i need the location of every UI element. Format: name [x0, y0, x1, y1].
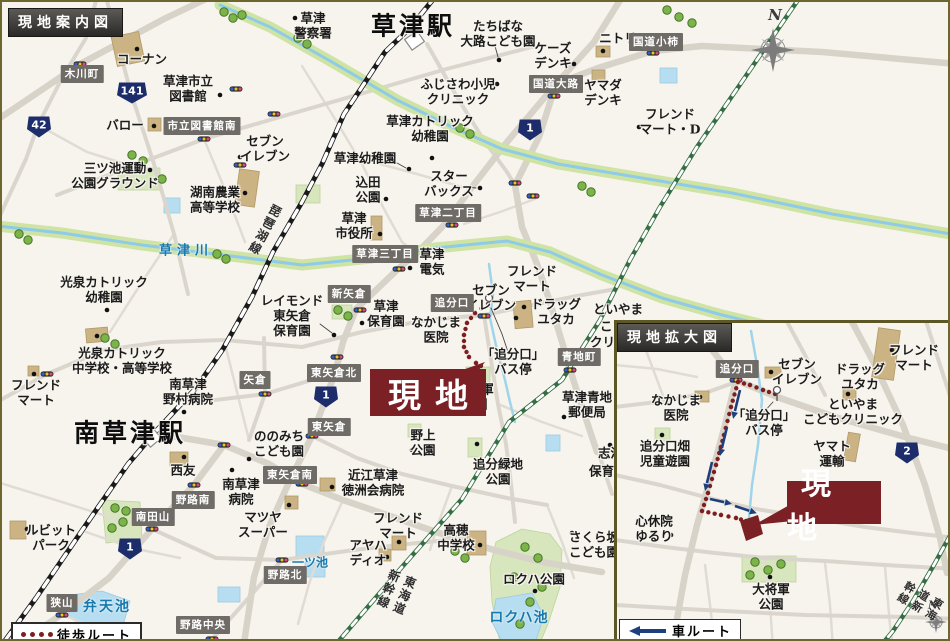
- place-label-line: 中学校・高等学校: [72, 361, 172, 376]
- route-dot: [462, 339, 466, 343]
- place-label: 湖南農業高等学校: [190, 185, 240, 215]
- tree-icon: [213, 250, 221, 258]
- place-label-line: バス停: [482, 362, 545, 377]
- place-label: 草津幼稚園: [334, 152, 397, 167]
- place-label-line: 湖南農業: [190, 185, 240, 200]
- place-label-line: 草津: [335, 211, 373, 226]
- place-label-line: デンキ: [534, 56, 572, 71]
- route-dot: [706, 510, 710, 514]
- place-label: 大将軍公園: [752, 582, 790, 612]
- place-label: ののみちこども園: [254, 429, 304, 459]
- route-dot: [469, 316, 473, 320]
- place-label-line: 電気: [419, 262, 444, 277]
- place-label-line: 草津: [294, 11, 332, 26]
- place-label-line: 「追分口」: [733, 408, 796, 423]
- place-label: 草津電気: [419, 247, 444, 277]
- place-dot-icon: [514, 316, 519, 321]
- intersection-badge: 新矢倉: [328, 285, 371, 303]
- place-label: ルビットパーク: [26, 523, 76, 553]
- tree-icon: [675, 13, 683, 21]
- place-label: 込田公園: [355, 175, 380, 205]
- place-label-line: デンキ: [584, 93, 622, 108]
- tree-icon: [24, 236, 32, 244]
- tree-icon: [220, 8, 228, 16]
- route-dot: [761, 388, 765, 392]
- intersection-badge: 野路中央: [176, 616, 230, 634]
- place-label: 草津市立図書館: [163, 74, 213, 104]
- tree-icon: [303, 40, 311, 48]
- traffic-signal-icon: [276, 557, 289, 562]
- place-label: ヤマダデンキ: [584, 78, 622, 108]
- place-dot-icon: [660, 433, 665, 438]
- water-label: 弁天池: [83, 596, 131, 616]
- place-label: 南草津野村病院: [163, 377, 213, 407]
- place-label: セブンイレブン: [240, 134, 290, 164]
- tree-icon: [15, 230, 23, 238]
- place-label: 西友: [170, 464, 195, 479]
- place-label-line: フレンド: [507, 264, 557, 279]
- route-dot: [726, 514, 730, 518]
- station-label: 草津駅: [371, 11, 455, 41]
- place-label-line: 公園: [752, 597, 790, 612]
- traffic-signal-icon: [218, 442, 231, 447]
- intersection-badge: 狭山: [47, 594, 78, 612]
- place-label: なかじま医院: [411, 315, 461, 345]
- site-parcel: [740, 515, 763, 541]
- place-label: ケーズデンキ: [534, 41, 572, 71]
- place-label-line: レイモンド: [261, 294, 324, 309]
- traffic-signal-icon: [564, 367, 577, 372]
- place-label: 高穂中学校: [437, 523, 475, 553]
- route-dot: [464, 350, 468, 354]
- traffic-signal-icon: [393, 266, 406, 271]
- intersection-badge: 草津三丁目: [352, 245, 418, 263]
- place-label-line: クリニック: [420, 92, 495, 107]
- place-label-line: バックス: [424, 184, 474, 199]
- place-label-line: フレンド: [11, 378, 61, 393]
- place-label-line: ディオ: [349, 553, 386, 568]
- route-dot: [462, 333, 466, 337]
- route-dot: [754, 385, 758, 389]
- place-label-line: 光泉カトリック: [60, 275, 148, 290]
- place-dot-icon: [105, 308, 110, 313]
- place-label-line: 公園: [473, 472, 523, 487]
- traffic-signal-icon: [146, 526, 159, 531]
- intersection-badge: 木川町: [61, 65, 104, 83]
- place-label-line: 大将軍: [752, 582, 790, 597]
- route-dot: [742, 381, 746, 385]
- route-dot: [732, 392, 736, 396]
- place-label-line: ロクハ公園: [503, 573, 565, 588]
- place-label-line: ドラッグ: [531, 297, 581, 312]
- place-label-line: フレンド: [373, 511, 423, 526]
- place-label-line: イレブン: [240, 149, 290, 164]
- place-label-line: 野村病院: [163, 392, 213, 407]
- place-label-line: といやま: [593, 303, 643, 318]
- place-label-line: 図書館: [163, 89, 213, 104]
- place-label-line: マート: [507, 279, 557, 294]
- place-label-line: 徳洲会病院: [342, 483, 405, 498]
- intersection-badge: 追分口: [431, 294, 474, 312]
- tree-icon: [101, 334, 109, 342]
- pond: [660, 68, 677, 83]
- route-dot: [712, 470, 716, 474]
- place-label-line: 野上: [410, 428, 435, 443]
- place-label-line: ヤマダ: [584, 78, 622, 93]
- place-label-line: 「追分口」: [482, 347, 545, 362]
- place-label: アヤハディオ: [349, 538, 386, 568]
- place-label-line: 草津カトリック: [386, 114, 474, 129]
- location-guide-map: 草津警察署たちばな大路こども園ケーズデンキニトリヤマダデンキフレンドマート・Dコ…: [0, 0, 950, 641]
- place-label-line: なかじま: [411, 315, 461, 330]
- place-label: フレンドマート: [507, 264, 557, 294]
- place-label: 草津警察署: [294, 11, 332, 41]
- walk-route-dot-icon: [30, 632, 35, 637]
- place-label-line: 児童遊園: [640, 454, 690, 469]
- place-label-line: スター: [424, 169, 474, 184]
- route-dot: [463, 327, 467, 331]
- place-label-line: 南草津: [163, 377, 213, 392]
- place-label-line: 公園グラウンド: [71, 176, 159, 191]
- tree-icon: [334, 306, 342, 314]
- tree-icon: [587, 188, 595, 196]
- site-marker-inset: 現地: [787, 481, 881, 524]
- place-label: バロー: [106, 119, 144, 134]
- route-dot: [734, 516, 738, 520]
- traffic-signal-icon: [230, 86, 243, 91]
- map-title: 現地案内図: [8, 8, 123, 37]
- route-dot: [714, 463, 718, 467]
- road-minor: [617, 365, 697, 377]
- place-label-line: 草津: [419, 247, 444, 262]
- place-label: フレンドマート: [11, 378, 61, 408]
- route-dot: [725, 419, 729, 423]
- route-dot: [727, 412, 731, 416]
- walk-route-legend-label: 徒歩ルート: [57, 625, 132, 641]
- place-dot-icon: [182, 410, 187, 415]
- place-label-line: 南草津: [222, 477, 260, 492]
- tree-icon: [222, 255, 230, 263]
- place-label-line: さくら坂: [569, 530, 619, 545]
- car-route-legend: 車ルート: [619, 619, 741, 641]
- place-dot-icon: [135, 47, 140, 52]
- tree-icon: [578, 182, 586, 190]
- place-dot-icon: [230, 468, 235, 473]
- place-label-line: イレブン: [772, 372, 822, 387]
- traffic-signal-icon: [56, 612, 69, 617]
- traffic-signal-icon: [198, 136, 211, 141]
- place-label-line: 心休院: [635, 514, 673, 529]
- place-label-line: セブン: [772, 357, 822, 372]
- place-label-line: マツヤ: [238, 510, 288, 525]
- building: [10, 521, 26, 539]
- intersection-badge: 草津二丁目: [415, 204, 481, 222]
- tree-icon: [122, 507, 130, 515]
- route-dot: [712, 511, 716, 515]
- place-dot-icon: [95, 334, 100, 339]
- place-label-line: 草津: [367, 299, 405, 314]
- place-label-line: 草津幼稚園: [334, 152, 397, 167]
- place-label-line: フレンド: [640, 107, 701, 122]
- place-label-line: 保育園: [261, 323, 324, 338]
- pond: [218, 587, 240, 602]
- car-route-arrow-icon: [628, 625, 668, 637]
- route-dot: [767, 390, 771, 394]
- place-label-line: 草津市立: [163, 74, 213, 89]
- traffic-signal-icon: [259, 391, 272, 396]
- place-label: 草津青地郵便局: [562, 390, 612, 420]
- intersection-badge: 市立図書館南: [164, 117, 241, 135]
- traffic-signal-icon: [188, 482, 201, 487]
- road: [249, 338, 265, 440]
- bus-stop-icon: [774, 387, 781, 394]
- place-label-line: 幼稚園: [386, 129, 474, 144]
- intersection-badge: 国道小柿: [629, 33, 683, 51]
- compass-north-label: N: [928, 599, 938, 612]
- walk-route-legend: 徒歩ルート: [11, 622, 142, 641]
- place-dot-icon: [768, 575, 773, 580]
- place-label: 追分緑地公園: [473, 457, 523, 487]
- place-dot-icon: [475, 442, 480, 447]
- tree-icon: [746, 571, 754, 579]
- place-label-line: 高等学校: [190, 200, 240, 215]
- place-label-line: 保育園: [367, 314, 405, 329]
- place-label-line: バス停: [733, 423, 796, 438]
- place-dot-icon: [408, 266, 413, 271]
- tree-icon: [777, 560, 785, 568]
- place-label-line: 込田: [355, 175, 380, 190]
- place-label-line: マート・D: [640, 122, 701, 137]
- place-label-line: ドラッグ: [835, 362, 885, 377]
- site-marker-main: 現地: [370, 369, 486, 416]
- place-label-line: 医院: [411, 330, 461, 345]
- tree-icon: [534, 554, 542, 562]
- place-label-line: 光泉カトリック: [72, 346, 172, 361]
- place-label-line: 市役所: [335, 226, 373, 241]
- tree-icon: [521, 543, 529, 551]
- route-dot: [467, 355, 471, 359]
- road-minor: [224, 340, 249, 440]
- place-label-line: 公園: [355, 190, 380, 205]
- walk-route-dot-icon: [21, 632, 26, 637]
- place-label: 草津市役所: [335, 211, 373, 241]
- tree-icon: [119, 518, 127, 526]
- place-label: セブンイレブン: [772, 357, 822, 387]
- place-label-line: こども園: [569, 545, 619, 560]
- place-dot-icon: [152, 124, 157, 129]
- place-dot-icon: [182, 455, 187, 460]
- place-dot-icon: [218, 93, 223, 98]
- place-label-line: 三ツ池運動: [71, 161, 159, 176]
- place-label: マツヤスーパー: [238, 510, 288, 540]
- intersection-badge: 東矢倉南: [263, 466, 317, 484]
- place-dot-icon: [360, 321, 365, 326]
- place-label: ドラッグユタカ: [531, 297, 581, 327]
- traffic-signal-icon: [354, 307, 367, 312]
- traffic-signal-icon: [509, 180, 522, 185]
- place-label: 三ツ池運動公園グラウンド: [71, 161, 159, 191]
- route-dot: [715, 457, 719, 461]
- traffic-signal-icon: [331, 354, 344, 359]
- intersection-badge: 南田山: [132, 508, 175, 526]
- traffic-signal-icon: [647, 50, 660, 55]
- place-dot-icon: [522, 305, 527, 310]
- place-label-line: 医院: [651, 408, 701, 423]
- place-dot-icon: [332, 333, 337, 338]
- tree-icon: [751, 558, 759, 566]
- tree-icon: [526, 598, 534, 606]
- place-label: ロクハ公園: [503, 573, 565, 588]
- inset-title: 現地拡大図: [617, 323, 732, 352]
- place-label-line: セブン: [240, 134, 290, 149]
- traffic-signal-icon: [206, 636, 219, 641]
- place-label-line: 郵便局: [562, 405, 612, 420]
- place-label-line: 警察署: [294, 26, 332, 41]
- traffic-signal-icon: [527, 193, 540, 198]
- tree-icon: [238, 11, 246, 19]
- intersection-badge: 追分口: [716, 360, 759, 378]
- place-label: たちばな大路こども園: [460, 19, 535, 49]
- traffic-signal-icon: [478, 313, 491, 318]
- place-label-line: ユタカ: [835, 377, 885, 392]
- place-label-line: 東矢倉: [261, 309, 324, 324]
- route-dot: [474, 361, 478, 365]
- place-label-line: 高穂: [437, 523, 475, 538]
- intersection-badge: 国道大路: [529, 75, 583, 93]
- intersection-badge: 野路北: [264, 566, 307, 584]
- place-label-line: ヤマト: [813, 439, 851, 454]
- place-label-line: こども園: [254, 444, 304, 459]
- place-label-line: ゆるり: [635, 529, 673, 544]
- place-label-line: 大路こども園: [460, 34, 535, 49]
- traffic-signal-icon: [446, 222, 459, 227]
- place-dot-icon: [330, 485, 335, 490]
- place-label: 「追分口」バス停: [482, 347, 545, 377]
- intersection-badge: 矢倉: [240, 371, 271, 389]
- tree-icon: [688, 19, 696, 27]
- place-label-line: ののみち: [254, 429, 304, 444]
- place-dot-icon: [407, 167, 412, 172]
- route-dot: [734, 386, 738, 390]
- place-label-line: なかじま: [651, 393, 701, 408]
- route-dot: [719, 513, 723, 517]
- place-dot-icon: [478, 543, 483, 548]
- place-dot-icon: [478, 186, 483, 191]
- walk-route-dot-icon: [39, 632, 44, 637]
- route-dot: [702, 503, 706, 507]
- route-dot: [704, 497, 708, 501]
- intersection-badge: 東矢倉北: [307, 364, 361, 382]
- place-label-line: マート: [889, 358, 939, 373]
- place-label: といやま: [593, 303, 643, 318]
- tree-icon: [111, 504, 119, 512]
- tree-icon: [128, 151, 136, 159]
- place-label: コーナン: [117, 53, 167, 68]
- place-label: レイモンド東矢倉保育園: [261, 294, 324, 338]
- place-label: さくら坂こども園: [569, 530, 619, 560]
- route-dot: [736, 380, 740, 384]
- tree-icon: [764, 566, 772, 574]
- place-label: スターバックス: [424, 169, 474, 199]
- place-label-line: 公園: [410, 443, 435, 458]
- leader-line: [397, 163, 406, 168]
- site-enlarged-inset-map: セブンイレブンフレンドマートドラッグユタカといやまこどもクリニックなかじま医院「…: [614, 320, 950, 641]
- traffic-signal-icon: [548, 93, 561, 98]
- water-label: ロクハ池: [489, 607, 548, 627]
- place-label-line: アヤハ: [349, 538, 386, 553]
- route-dot: [731, 399, 735, 403]
- route-dot: [706, 491, 710, 495]
- traffic-signal-icon: [41, 371, 54, 376]
- place-label: 「追分口」バス停: [733, 408, 796, 438]
- walk-route-dot-icon: [48, 632, 53, 637]
- place-label-line: といやま: [803, 397, 903, 412]
- place-label-line: 草津青地: [562, 390, 612, 405]
- place-label: ドラッグユタカ: [835, 362, 885, 392]
- place-dot-icon: [430, 156, 435, 161]
- intersection-badge: 青地町: [558, 348, 601, 366]
- pond: [546, 435, 560, 451]
- place-label-line: 中学校: [437, 538, 475, 553]
- place-label-line: イレブン: [466, 298, 516, 313]
- place-label: 追分口畑児童遊園: [640, 439, 690, 469]
- place-label-line: ケーズ: [534, 41, 572, 56]
- intersection-badge: 東矢倉: [308, 418, 351, 436]
- car-route-legend-label: 車ルート: [672, 621, 732, 640]
- place-label-line: 幼稚園: [60, 290, 148, 305]
- route-dot: [462, 345, 466, 349]
- place-dot-icon: [247, 457, 252, 462]
- place-label: 草津カトリック幼稚園: [386, 114, 474, 144]
- place-label: といやまこどもクリニック: [803, 397, 903, 427]
- place-label-line: バロー: [106, 119, 144, 134]
- place-dot-icon: [572, 62, 577, 67]
- place-label-line: こどもクリニック: [803, 412, 903, 427]
- station-label: 南草津駅: [74, 418, 186, 448]
- park-area: [468, 438, 482, 457]
- intersection-badge: 野路南: [172, 491, 215, 509]
- place-label: 近江草津徳洲会病院: [342, 468, 405, 498]
- place-label-line: ふじさわ小児: [420, 77, 495, 92]
- place-label-line: 近江草津: [342, 468, 405, 483]
- road-minor: [825, 563, 833, 640]
- building: [285, 496, 298, 509]
- place-label: なかじま医院: [651, 393, 701, 423]
- place-label: ふじさわ小児クリニック: [420, 77, 495, 107]
- place-dot-icon: [243, 191, 248, 196]
- tree-icon: [663, 6, 671, 14]
- place-dot-icon: [497, 58, 502, 63]
- compass-north-label: N: [768, 6, 782, 24]
- place-label-line: たちばな: [460, 19, 535, 34]
- place-dot-icon: [601, 49, 606, 54]
- place-dot-icon: [32, 372, 37, 377]
- place-label-line: フレンド: [889, 343, 939, 358]
- place-label: 光泉カトリック中学校・高等学校: [72, 346, 172, 376]
- place-label-line: ユタカ: [531, 312, 581, 327]
- place-dot-icon: [287, 503, 292, 508]
- place-label: 野上公園: [410, 428, 435, 458]
- place-label-line: スーパー: [238, 525, 288, 540]
- place-label: 光泉カトリック幼稚園: [60, 275, 148, 305]
- place-label-line: 西友: [170, 464, 195, 479]
- route-dot: [710, 477, 714, 481]
- place-label-line: コーナン: [117, 53, 167, 68]
- place-label: フレンドマート・D: [640, 107, 701, 137]
- tree-icon: [461, 554, 469, 562]
- place-label-line: マート: [11, 393, 61, 408]
- place-label: フレンドマート: [889, 343, 939, 373]
